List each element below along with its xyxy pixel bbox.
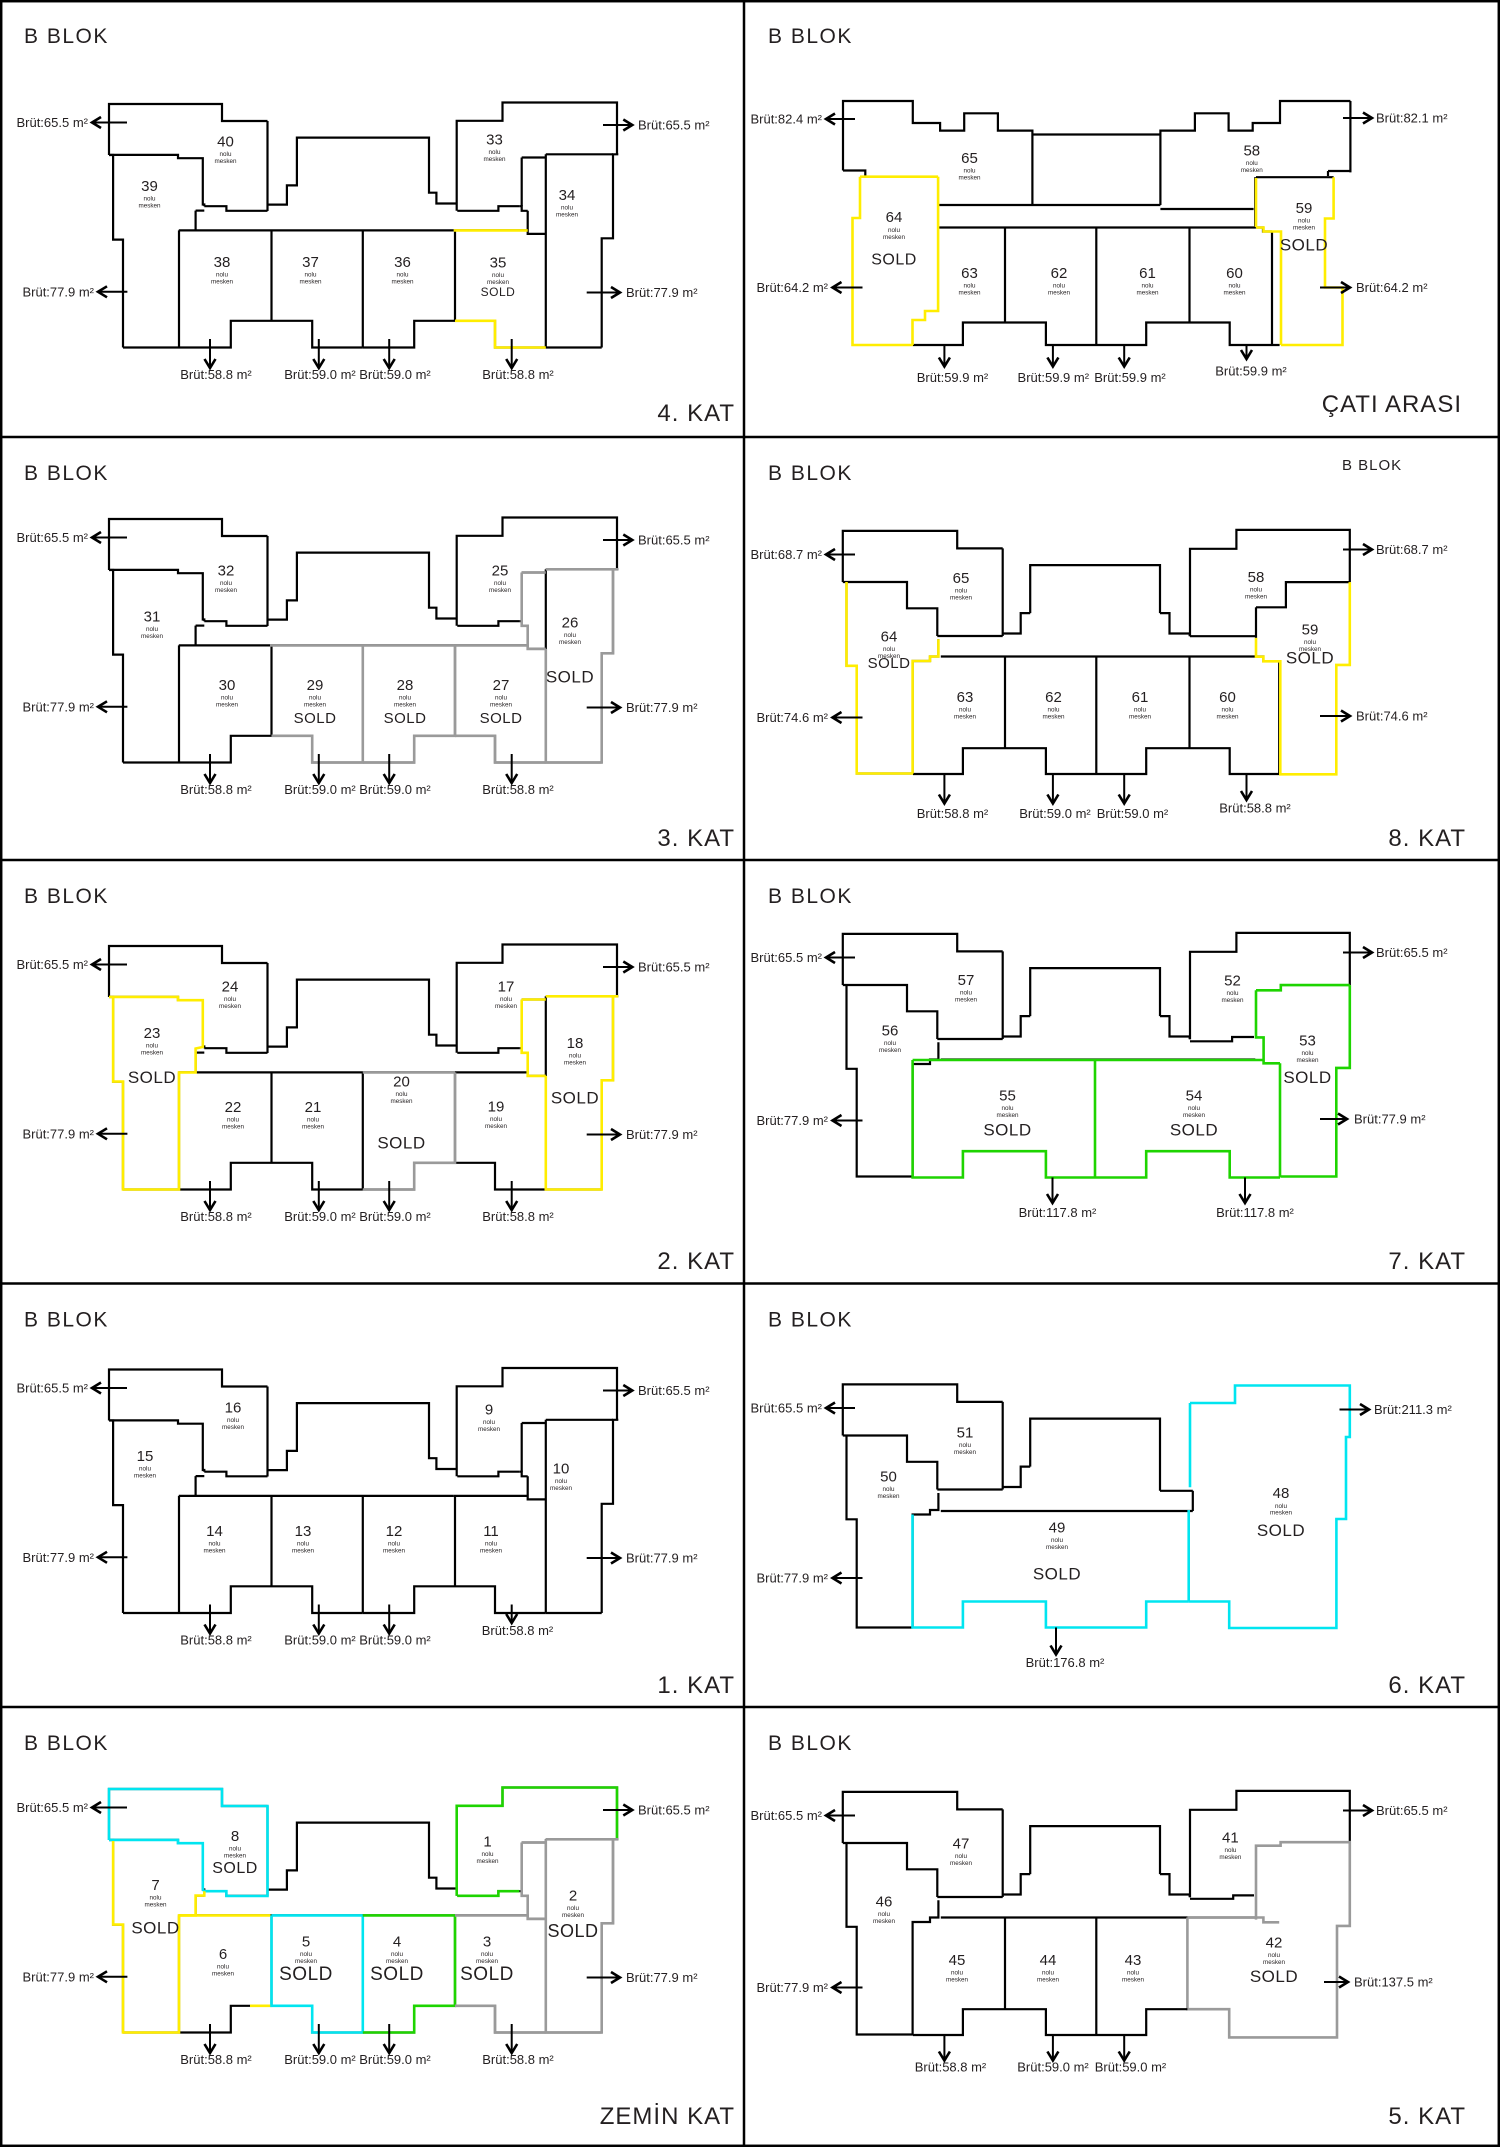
svg-text:mesken: mesken xyxy=(222,1124,245,1131)
svg-text:SOLD: SOLD xyxy=(460,1964,514,1985)
svg-text:51: 51 xyxy=(957,1424,974,1441)
svg-text:31: 31 xyxy=(144,608,161,625)
svg-text:mesken: mesken xyxy=(478,1426,501,1433)
svg-text:Brüt:58.8 m²: Brüt:58.8 m² xyxy=(1219,801,1291,816)
svg-text:37: 37 xyxy=(302,254,319,271)
svg-text:62: 62 xyxy=(1051,265,1068,282)
svg-text:Brüt:59.0 m²: Brüt:59.0 m² xyxy=(359,2052,431,2067)
svg-text:mesken: mesken xyxy=(954,714,977,721)
svg-text:mesken: mesken xyxy=(1293,225,1316,232)
svg-text:54: 54 xyxy=(1186,1087,1203,1104)
svg-text:SOLD: SOLD xyxy=(279,1964,333,1985)
svg-text:mesken: mesken xyxy=(219,1003,242,1010)
svg-text:Brüt:59.9 m²: Brüt:59.9 m² xyxy=(1094,370,1166,385)
svg-text:Brüt:58.8 m²: Brüt:58.8 m² xyxy=(482,367,554,382)
svg-text:20: 20 xyxy=(393,1073,410,1090)
svg-text:mesken: mesken xyxy=(391,279,414,286)
svg-text:64: 64 xyxy=(881,628,898,645)
svg-text:60: 60 xyxy=(1219,689,1236,706)
svg-text:Brüt:77.9 m²: Brüt:77.9 m² xyxy=(22,284,94,299)
svg-text:Brüt:59.0 m²: Brüt:59.0 m² xyxy=(1095,2060,1167,2075)
svg-text:mesken: mesken xyxy=(883,234,906,241)
svg-text:mesken: mesken xyxy=(1221,997,1244,1004)
svg-text:mesken: mesken xyxy=(1046,1544,1069,1551)
svg-text:13: 13 xyxy=(295,1523,312,1540)
svg-text:57: 57 xyxy=(958,972,975,989)
svg-text:Brüt:77.9 m²: Brüt:77.9 m² xyxy=(626,1551,698,1566)
svg-text:mesken: mesken xyxy=(211,279,234,286)
svg-text:SOLD: SOLD xyxy=(1170,1121,1218,1140)
svg-text:Brüt:64.2 m²: Brüt:64.2 m² xyxy=(1356,280,1428,295)
svg-text:Brüt:77.9 m²: Brüt:77.9 m² xyxy=(626,1970,698,1985)
svg-text:Brüt:65.5 m²: Brüt:65.5 m² xyxy=(16,957,88,972)
svg-text:B BLOK: B BLOK xyxy=(768,1732,853,1755)
svg-text:Brüt:59.0 m²: Brüt:59.0 m² xyxy=(284,782,356,797)
svg-text:mesken: mesken xyxy=(996,1112,1019,1119)
svg-text:Brüt:77.9 m²: Brüt:77.9 m² xyxy=(626,1127,698,1142)
svg-text:2: 2 xyxy=(569,1887,577,1904)
svg-text:Brüt:59.9 m²: Brüt:59.9 m² xyxy=(917,370,989,385)
svg-text:mesken: mesken xyxy=(490,702,513,709)
svg-text:mesken: mesken xyxy=(950,595,973,602)
svg-text:SOLD: SOLD xyxy=(131,1919,179,1938)
svg-text:1: 1 xyxy=(483,1833,491,1850)
svg-text:mesken: mesken xyxy=(222,1424,245,1431)
svg-text:mesken: mesken xyxy=(141,1050,164,1057)
svg-text:Brüt:58.8 m²: Brüt:58.8 m² xyxy=(917,806,989,821)
svg-text:65: 65 xyxy=(953,570,970,587)
svg-text:B BLOK: B BLOK xyxy=(768,462,853,485)
svg-text:SOLD: SOLD xyxy=(546,668,594,687)
svg-text:mesken: mesken xyxy=(1136,290,1159,297)
svg-text:mesken: mesken xyxy=(1270,1510,1293,1517)
svg-text:Brüt:65.5 m²: Brüt:65.5 m² xyxy=(1376,1803,1448,1818)
svg-text:mesken: mesken xyxy=(958,290,981,297)
svg-text:40: 40 xyxy=(217,133,234,150)
svg-text:Brüt:59.0 m²: Brüt:59.0 m² xyxy=(359,782,431,797)
svg-text:mesken: mesken xyxy=(394,702,417,709)
svg-text:mesken: mesken xyxy=(562,1912,585,1919)
svg-text:Brüt:65.5 m²: Brüt:65.5 m² xyxy=(638,960,710,975)
svg-text:Brüt:59.0 m²: Brüt:59.0 m² xyxy=(284,1209,356,1224)
svg-text:Brüt:58.8 m²: Brüt:58.8 m² xyxy=(180,1209,252,1224)
svg-text:43: 43 xyxy=(1125,1952,1142,1969)
svg-text:11: 11 xyxy=(483,1523,499,1540)
svg-text:mesken: mesken xyxy=(950,1860,973,1867)
svg-text:56: 56 xyxy=(882,1022,899,1039)
svg-text:B BLOK: B BLOK xyxy=(24,1309,109,1332)
svg-text:mesken: mesken xyxy=(1122,1977,1145,1984)
svg-text:17: 17 xyxy=(498,978,515,995)
svg-text:Brüt:59.0 m²: Brüt:59.0 m² xyxy=(359,1633,431,1648)
svg-text:Brüt:68.7 m²: Brüt:68.7 m² xyxy=(750,547,822,562)
svg-text:mesken: mesken xyxy=(480,1548,503,1555)
svg-text:mesken: mesken xyxy=(489,587,512,594)
svg-text:mesken: mesken xyxy=(1296,1057,1319,1064)
svg-text:SOLD: SOLD xyxy=(868,655,911,672)
svg-text:mesken: mesken xyxy=(215,587,238,594)
svg-text:30: 30 xyxy=(219,677,236,694)
svg-text:mesken: mesken xyxy=(214,158,237,165)
svg-text:Brüt:77.9 m²: Brüt:77.9 m² xyxy=(22,1126,94,1141)
svg-text:mesken: mesken xyxy=(958,175,981,182)
svg-text:SOLD: SOLD xyxy=(1283,1068,1331,1087)
svg-text:SOLD: SOLD xyxy=(1286,649,1334,668)
svg-text:22: 22 xyxy=(225,1099,242,1116)
svg-text:B BLOK: B BLOK xyxy=(1342,457,1402,474)
svg-text:SOLD: SOLD xyxy=(212,1860,258,1877)
svg-text:60: 60 xyxy=(1226,265,1243,282)
svg-text:61: 61 xyxy=(1139,265,1156,282)
svg-text:mesken: mesken xyxy=(144,1902,167,1909)
svg-text:10: 10 xyxy=(553,1460,570,1477)
svg-text:Brüt:117.8 m²: Brüt:117.8 m² xyxy=(1019,1205,1097,1220)
svg-text:mesken: mesken xyxy=(304,702,327,709)
svg-text:41: 41 xyxy=(1222,1829,1239,1846)
svg-text:mesken: mesken xyxy=(556,212,579,219)
svg-text:48: 48 xyxy=(1273,1485,1290,1502)
svg-text:Brüt:82.4 m²: Brüt:82.4 m² xyxy=(750,112,822,127)
svg-text:mesken: mesken xyxy=(1245,594,1268,601)
svg-text:mesken: mesken xyxy=(302,1124,325,1131)
svg-text:Brüt:176.8 m²: Brüt:176.8 m² xyxy=(1026,1655,1105,1670)
svg-text:Brüt:74.6 m²: Brüt:74.6 m² xyxy=(756,710,828,725)
svg-text:B BLOK: B BLOK xyxy=(768,25,853,48)
svg-text:29: 29 xyxy=(307,677,324,694)
svg-text:Brüt:65.5 m²: Brüt:65.5 m² xyxy=(750,950,822,965)
svg-text:Brüt:65.5 m²: Brüt:65.5 m² xyxy=(638,1383,710,1398)
svg-text:Brüt:58.8 m²: Brüt:58.8 m² xyxy=(180,367,252,382)
svg-text:Brüt:64.2 m²: Brüt:64.2 m² xyxy=(756,280,828,295)
svg-text:mesken: mesken xyxy=(212,1971,235,1978)
svg-text:Brüt:59.9 m²: Brüt:59.9 m² xyxy=(1018,370,1090,385)
svg-text:mesken: mesken xyxy=(138,203,161,210)
svg-text:Brüt:65.5 m²: Brüt:65.5 m² xyxy=(638,1803,710,1818)
svg-text:64: 64 xyxy=(886,209,903,226)
svg-text:52: 52 xyxy=(1224,972,1241,989)
svg-text:8. KAT: 8. KAT xyxy=(1388,825,1466,852)
svg-text:SOLD: SOLD xyxy=(128,1068,176,1087)
svg-text:SOLD: SOLD xyxy=(547,1921,598,1941)
svg-text:mesken: mesken xyxy=(1042,714,1065,721)
svg-text:mesken: mesken xyxy=(877,1493,900,1500)
svg-text:24: 24 xyxy=(222,978,239,995)
svg-text:SOLD: SOLD xyxy=(551,1089,599,1108)
svg-text:mesken: mesken xyxy=(1219,1854,1242,1861)
svg-text:Brüt:65.5 m²: Brüt:65.5 m² xyxy=(16,1800,88,1815)
svg-text:mesken: mesken xyxy=(216,702,239,709)
svg-text:Brüt:59.0 m²: Brüt:59.0 m² xyxy=(1019,806,1091,821)
svg-text:12: 12 xyxy=(386,1523,403,1540)
svg-text:Brüt:82.1 m²: Brüt:82.1 m² xyxy=(1376,111,1448,126)
svg-text:mesken: mesken xyxy=(141,633,164,640)
svg-text:55: 55 xyxy=(999,1087,1016,1104)
svg-text:27: 27 xyxy=(493,677,510,694)
svg-text:SOLD: SOLD xyxy=(294,710,337,727)
svg-text:Brüt:65.5 m²: Brüt:65.5 m² xyxy=(16,1381,88,1396)
svg-text:8: 8 xyxy=(231,1828,239,1845)
svg-text:mesken: mesken xyxy=(954,1449,977,1456)
svg-text:ZEMİN KAT: ZEMİN KAT xyxy=(600,2103,735,2130)
svg-text:53: 53 xyxy=(1299,1032,1316,1049)
svg-text:B BLOK: B BLOK xyxy=(768,1309,853,1332)
svg-text:58: 58 xyxy=(1243,142,1260,159)
svg-text:Brüt:65.5 m²: Brüt:65.5 m² xyxy=(750,1401,822,1416)
svg-text:47: 47 xyxy=(953,1835,970,1852)
svg-text:Brüt:65.5 m²: Brüt:65.5 m² xyxy=(16,530,88,545)
svg-text:3: 3 xyxy=(483,1933,491,1950)
svg-text:33: 33 xyxy=(486,131,503,148)
svg-text:1. KAT: 1. KAT xyxy=(657,1672,735,1699)
svg-text:SOLD: SOLD xyxy=(481,285,516,299)
svg-text:3. KAT: 3. KAT xyxy=(657,825,735,852)
svg-text:Brüt:58.8 m²: Brüt:58.8 m² xyxy=(180,782,252,797)
svg-text:mesken: mesken xyxy=(873,1918,896,1925)
svg-text:SOLD: SOLD xyxy=(1250,1967,1298,1986)
svg-text:mesken: mesken xyxy=(1263,1959,1286,1966)
svg-text:SOLD: SOLD xyxy=(480,710,523,727)
svg-text:Brüt:58.8 m²: Brüt:58.8 m² xyxy=(180,2052,252,2067)
svg-text:63: 63 xyxy=(961,265,978,282)
svg-text:Brüt:58.8 m²: Brüt:58.8 m² xyxy=(915,2060,987,2075)
svg-text:5. KAT: 5. KAT xyxy=(1388,2103,1466,2130)
svg-text:mesken: mesken xyxy=(134,1473,157,1480)
svg-text:Brüt:77.9 m²: Brüt:77.9 m² xyxy=(22,1969,94,1984)
svg-text:7: 7 xyxy=(151,1877,159,1894)
svg-text:18: 18 xyxy=(567,1035,584,1052)
svg-text:mesken: mesken xyxy=(476,1858,499,1865)
svg-text:Brüt:77.9 m²: Brüt:77.9 m² xyxy=(22,1550,94,1565)
svg-text:Brüt:59.0 m²: Brüt:59.0 m² xyxy=(1097,806,1169,821)
svg-text:Brüt:77.9 m²: Brüt:77.9 m² xyxy=(756,1571,828,1586)
svg-text:SOLD: SOLD xyxy=(983,1121,1031,1140)
svg-text:45: 45 xyxy=(949,1952,966,1969)
svg-text:mesken: mesken xyxy=(292,1548,315,1555)
svg-text:Brüt:137.5 m²: Brüt:137.5 m² xyxy=(1354,1975,1433,1990)
svg-text:Brüt:59.0 m²: Brüt:59.0 m² xyxy=(359,367,431,382)
svg-text:Brüt:68.7 m²: Brüt:68.7 m² xyxy=(1376,542,1448,557)
svg-text:6: 6 xyxy=(219,1946,227,1963)
svg-text:Brüt:65.5 m²: Brüt:65.5 m² xyxy=(1376,945,1448,960)
svg-text:Brüt:74.6 m²: Brüt:74.6 m² xyxy=(1356,709,1428,724)
svg-text:ÇATI ARASI: ÇATI ARASI xyxy=(1322,391,1462,418)
svg-text:B BLOK: B BLOK xyxy=(24,462,109,485)
svg-text:mesken: mesken xyxy=(1037,1977,1060,1984)
svg-text:SOLD: SOLD xyxy=(1033,1565,1081,1584)
svg-text:mesken: mesken xyxy=(946,1977,969,1984)
svg-text:4. KAT: 4. KAT xyxy=(657,400,735,427)
svg-text:21: 21 xyxy=(305,1099,322,1116)
svg-text:Brüt:117.8 m²: Brüt:117.8 m² xyxy=(1216,1205,1294,1220)
svg-text:19: 19 xyxy=(488,1098,505,1115)
svg-text:Brüt:59.0 m²: Brüt:59.0 m² xyxy=(1017,2060,1089,2075)
svg-text:49: 49 xyxy=(1049,1519,1066,1536)
svg-text:59: 59 xyxy=(1302,621,1319,638)
svg-text:32: 32 xyxy=(218,562,235,579)
svg-text:39: 39 xyxy=(141,178,158,195)
svg-text:mesken: mesken xyxy=(485,1123,508,1130)
svg-text:mesken: mesken xyxy=(390,1098,413,1105)
svg-text:Brüt:77.9 m²: Brüt:77.9 m² xyxy=(1354,1112,1426,1127)
svg-text:mesken: mesken xyxy=(383,1548,406,1555)
svg-text:B BLOK: B BLOK xyxy=(24,25,109,48)
svg-text:4: 4 xyxy=(393,1933,401,1950)
svg-text:SOLD: SOLD xyxy=(1257,1521,1305,1540)
svg-text:16: 16 xyxy=(225,1399,242,1416)
svg-text:9: 9 xyxy=(485,1401,493,1418)
svg-text:23: 23 xyxy=(144,1025,161,1042)
svg-text:mesken: mesken xyxy=(1216,714,1239,721)
svg-text:46: 46 xyxy=(876,1893,893,1910)
svg-text:Brüt:65.5 m²: Brüt:65.5 m² xyxy=(750,1808,822,1823)
svg-text:Brüt:58.8 m²: Brüt:58.8 m² xyxy=(180,1633,252,1648)
svg-text:SOLD: SOLD xyxy=(384,710,427,727)
svg-text:mesken: mesken xyxy=(299,279,322,286)
svg-text:26: 26 xyxy=(562,614,579,631)
svg-text:Brüt:58.8 m²: Brüt:58.8 m² xyxy=(482,2052,554,2067)
svg-text:44: 44 xyxy=(1040,1952,1057,1969)
svg-text:65: 65 xyxy=(961,150,978,167)
svg-text:mesken: mesken xyxy=(1183,1112,1206,1119)
svg-text:6. KAT: 6. KAT xyxy=(1388,1672,1466,1699)
svg-text:SOLD: SOLD xyxy=(1280,235,1328,254)
svg-text:Brüt:58.8 m²: Brüt:58.8 m² xyxy=(482,1623,554,1638)
svg-text:SOLD: SOLD xyxy=(871,252,917,269)
svg-text:25: 25 xyxy=(492,562,509,579)
svg-text:28: 28 xyxy=(397,677,414,694)
svg-text:61: 61 xyxy=(1132,689,1149,706)
svg-text:35: 35 xyxy=(490,254,507,271)
svg-text:mesken: mesken xyxy=(879,1047,902,1054)
svg-text:mesken: mesken xyxy=(955,997,978,1004)
svg-text:62: 62 xyxy=(1045,689,1062,706)
svg-text:58: 58 xyxy=(1248,569,1265,586)
svg-text:7. KAT: 7. KAT xyxy=(1388,1248,1466,1275)
svg-text:Brüt:59.9 m²: Brüt:59.9 m² xyxy=(1215,364,1287,379)
svg-text:SOLD: SOLD xyxy=(370,1964,424,1985)
svg-text:Brüt:65.5 m²: Brüt:65.5 m² xyxy=(638,533,710,548)
svg-text:63: 63 xyxy=(957,689,974,706)
svg-text:2. KAT: 2. KAT xyxy=(657,1248,735,1275)
svg-text:Brüt:59.0 m²: Brüt:59.0 m² xyxy=(284,367,356,382)
svg-text:Brüt:77.9 m²: Brüt:77.9 m² xyxy=(756,1980,828,1995)
svg-text:mesken: mesken xyxy=(1129,714,1152,721)
svg-text:Brüt:59.0 m²: Brüt:59.0 m² xyxy=(359,1209,431,1224)
svg-text:Brüt:77.9 m²: Brüt:77.9 m² xyxy=(626,700,698,715)
svg-text:mesken: mesken xyxy=(1048,290,1071,297)
svg-text:36: 36 xyxy=(394,254,411,271)
svg-text:mesken: mesken xyxy=(550,1485,573,1492)
svg-text:Brüt:65.5 m²: Brüt:65.5 m² xyxy=(638,118,710,133)
svg-text:34: 34 xyxy=(559,187,576,204)
svg-text:42: 42 xyxy=(1266,1934,1283,1951)
svg-text:SOLD: SOLD xyxy=(377,1134,425,1153)
svg-text:Brüt:65.5 m²: Brüt:65.5 m² xyxy=(16,115,88,130)
svg-text:B BLOK: B BLOK xyxy=(24,1732,109,1755)
svg-text:14: 14 xyxy=(206,1523,223,1540)
svg-text:mesken: mesken xyxy=(224,1853,247,1860)
svg-text:5: 5 xyxy=(302,1933,310,1950)
svg-text:mesken: mesken xyxy=(559,639,582,646)
svg-text:mesken: mesken xyxy=(203,1548,226,1555)
svg-text:mesken: mesken xyxy=(1241,167,1264,174)
svg-text:50: 50 xyxy=(880,1468,897,1485)
svg-text:B BLOK: B BLOK xyxy=(768,885,853,908)
svg-text:Brüt:59.0 m²: Brüt:59.0 m² xyxy=(284,1633,356,1648)
svg-text:Brüt:59.0 m²: Brüt:59.0 m² xyxy=(284,2052,356,2067)
svg-text:Brüt:211.3 m²: Brüt:211.3 m² xyxy=(1374,1402,1452,1417)
svg-text:Brüt:77.9 m²: Brüt:77.9 m² xyxy=(22,699,94,714)
svg-text:15: 15 xyxy=(137,1448,154,1465)
svg-text:B BLOK: B BLOK xyxy=(24,885,109,908)
svg-text:Brüt:77.9 m²: Brüt:77.9 m² xyxy=(756,1113,828,1128)
svg-text:59: 59 xyxy=(1296,200,1313,217)
svg-text:Brüt:77.9 m²: Brüt:77.9 m² xyxy=(626,285,698,300)
svg-text:mesken: mesken xyxy=(495,1003,518,1010)
svg-text:Brüt:58.8 m²: Brüt:58.8 m² xyxy=(482,782,554,797)
svg-text:mesken: mesken xyxy=(564,1060,587,1067)
svg-text:38: 38 xyxy=(214,254,231,271)
svg-text:mesken: mesken xyxy=(1223,290,1246,297)
svg-text:Brüt:58.8 m²: Brüt:58.8 m² xyxy=(482,1209,554,1224)
svg-text:mesken: mesken xyxy=(483,156,506,163)
